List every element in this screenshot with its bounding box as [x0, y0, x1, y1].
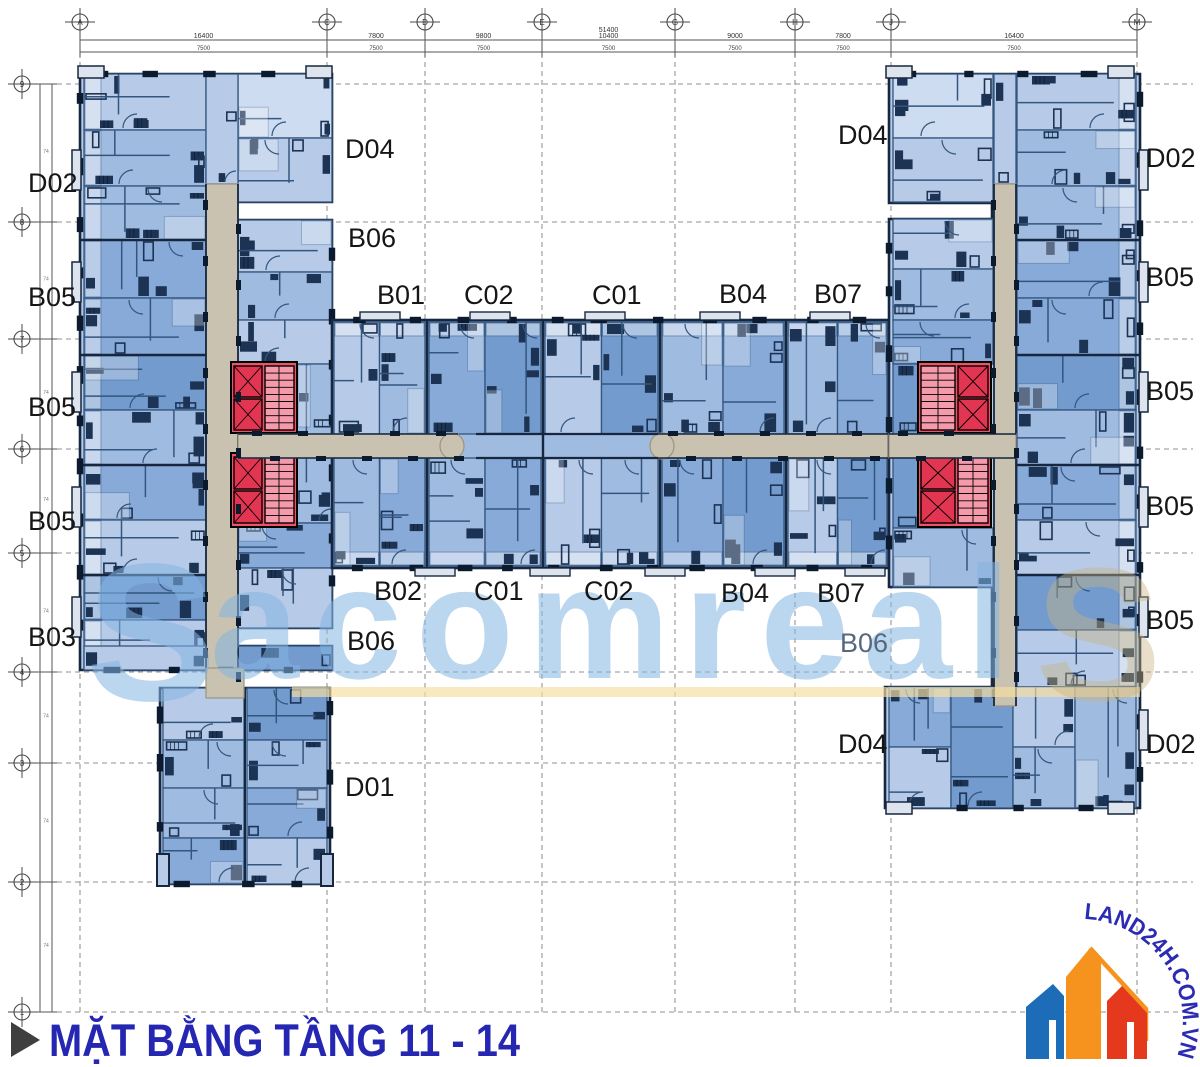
svg-text:acomreal: acomreal [210, 533, 1025, 712]
svg-text:7500: 7500 [477, 46, 491, 52]
svg-text:9800: 9800 [476, 33, 492, 40]
svg-text:J: J [889, 18, 893, 27]
svg-text:7500: 7500 [836, 46, 850, 52]
svg-text:9: 9 [20, 80, 25, 89]
svg-text:B05: B05 [28, 506, 76, 536]
svg-text:D02: D02 [1146, 143, 1196, 173]
svg-text:C02: C02 [464, 280, 514, 310]
svg-text:7500: 7500 [369, 46, 383, 52]
svg-text:C01: C01 [592, 280, 642, 310]
svg-text:3: 3 [20, 759, 25, 768]
svg-text:B02: B02 [374, 576, 422, 606]
svg-text:B04: B04 [721, 578, 769, 608]
svg-text:D02: D02 [28, 168, 78, 198]
svg-text:7800: 7800 [368, 33, 384, 40]
svg-text:74: 74 [43, 497, 49, 503]
svg-text:B05: B05 [1146, 605, 1194, 635]
svg-text:D02: D02 [1146, 729, 1196, 759]
svg-text:7: 7 [20, 335, 25, 344]
svg-text:2: 2 [20, 878, 25, 887]
svg-text:MẶT BẰNG TẦNG 11 - 14: MẶT BẰNG TẦNG 11 - 14 [49, 1015, 520, 1066]
svg-text:A: A [77, 18, 83, 27]
svg-text:D: D [422, 18, 428, 27]
svg-text:D04: D04 [838, 120, 888, 150]
svg-text:74: 74 [43, 609, 49, 615]
svg-text:H: H [792, 18, 798, 27]
svg-text:B07: B07 [817, 578, 865, 608]
svg-text:74: 74 [43, 714, 49, 720]
svg-text:B05: B05 [28, 392, 76, 422]
svg-text:D04: D04 [838, 729, 888, 759]
svg-text:9000: 9000 [727, 33, 743, 40]
svg-text:S: S [1035, 529, 1162, 741]
svg-text:B05: B05 [1146, 376, 1194, 406]
svg-text:7500: 7500 [602, 46, 616, 52]
svg-text:74: 74 [43, 943, 49, 949]
svg-text:7500: 7500 [728, 46, 742, 52]
svg-text:D01: D01 [345, 772, 395, 802]
svg-text:B07: B07 [814, 279, 862, 309]
svg-text:B05: B05 [1146, 262, 1194, 292]
svg-text:7500: 7500 [1007, 46, 1021, 52]
svg-text:7800: 7800 [835, 33, 851, 40]
svg-text:B03: B03 [28, 622, 76, 652]
svg-text:B05: B05 [28, 282, 76, 312]
svg-text:B01: B01 [377, 280, 425, 310]
svg-text:B04: B04 [719, 279, 767, 309]
svg-text:B06: B06 [347, 626, 395, 656]
svg-text:5: 5 [20, 549, 25, 558]
svg-text:74: 74 [43, 149, 49, 155]
svg-text:8: 8 [20, 218, 25, 227]
svg-text:E: E [539, 18, 544, 27]
svg-text:S: S [86, 523, 217, 742]
svg-text:C01: C01 [474, 576, 524, 606]
svg-text:M: M [1134, 18, 1141, 27]
svg-text:7500: 7500 [197, 46, 211, 52]
svg-text:G: G [672, 18, 678, 27]
svg-text:B05: B05 [1146, 491, 1194, 521]
svg-text:B06: B06 [840, 628, 888, 658]
svg-text:51400: 51400 [599, 27, 619, 34]
svg-text:D04: D04 [345, 134, 395, 164]
svg-text:10400: 10400 [599, 33, 619, 40]
svg-text:6: 6 [20, 445, 25, 454]
svg-text:B06: B06 [348, 223, 396, 253]
svg-text:C02: C02 [584, 576, 634, 606]
svg-text:74: 74 [43, 819, 49, 825]
svg-text:16400: 16400 [194, 33, 214, 40]
svg-text:16400: 16400 [1004, 33, 1024, 40]
svg-text:C: C [324, 18, 330, 27]
svg-text:1: 1 [20, 1008, 25, 1017]
svg-text:4: 4 [20, 668, 25, 677]
